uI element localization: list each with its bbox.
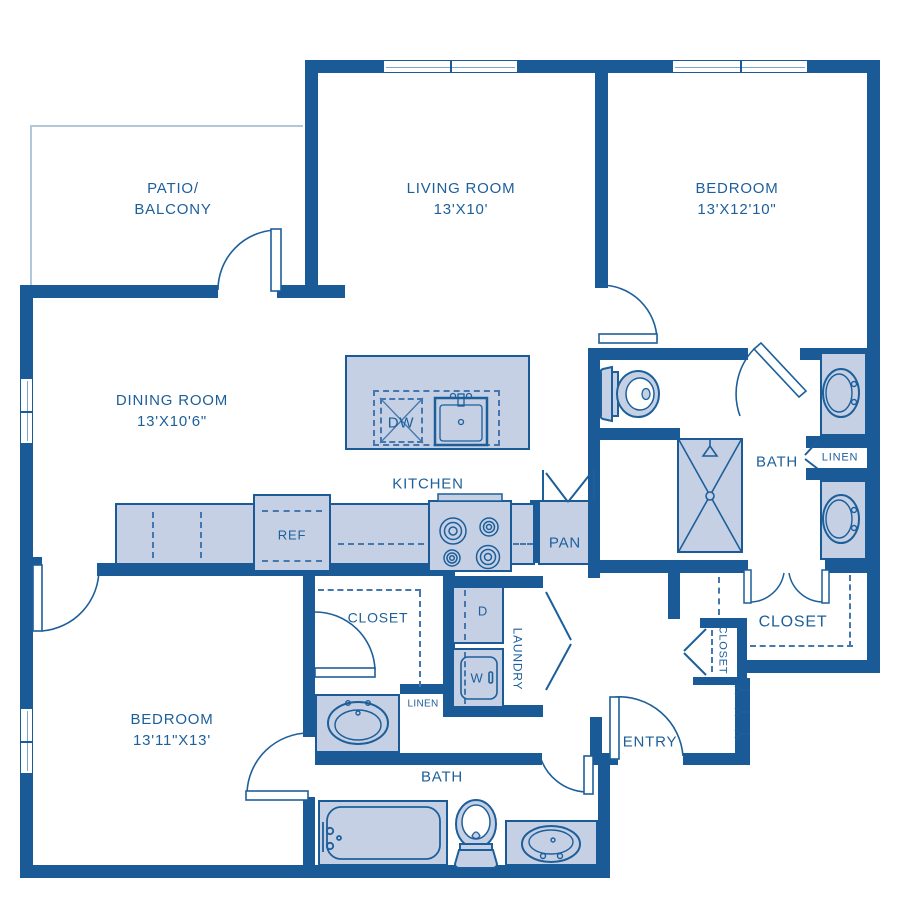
entry-coat-hooks [735,686,750,738]
bedroom1-label: BEDROOM 13'X12'10" [695,178,778,220]
small-closet-label: CLOSET [712,626,733,675]
linen2-label: LINEN [408,694,439,715]
dining-room-label: DINING ROOM 13'X10'6" [116,390,228,432]
patio-door [218,229,281,291]
bath1-label: BATH [756,452,798,473]
dryer-label: D [478,601,488,622]
linen1-label: LINEN [822,448,858,469]
patio-label-line1: PATIO/ [134,178,211,199]
walkin-closet-label: CLOSET [759,612,828,633]
pantry-label: PAN [549,533,581,554]
bath2-door [540,756,593,794]
living-room-dims: 13'X10' [407,199,516,220]
pantry-doors [543,470,594,502]
bath2-label: BATH [421,767,463,788]
sink-bath1-bottom [823,495,859,543]
toilet-bath2 [455,800,497,868]
washer-label: W [470,668,483,689]
bedroom1-dims: 13'X12'10" [695,199,778,220]
island-sink [435,394,487,446]
bedroom2-name: BEDROOM [130,709,213,730]
bedroom2-hall-door [246,733,309,800]
bedroom2-door [33,565,99,631]
dining-room-dims: 13'X10'6" [116,411,228,432]
sink-bedroom2-vanity [328,701,388,744]
bathtub-detail [323,807,440,859]
toilet-bath1 [601,367,659,421]
shower-detail [679,438,741,551]
small-closet-doors [684,629,706,675]
sink-bath2 [522,826,580,862]
patio-label: PATIO/ BALCONY [134,178,211,220]
fixtures-layer [0,0,900,900]
bedroom1-name: BEDROOM [695,178,778,199]
linen1-door [805,441,818,469]
living-room-label: LIVING ROOM 13'X10' [407,178,516,220]
dining-room-name: DINING ROOM [116,390,228,411]
bedroom2-dims: 13'11"X13' [130,730,213,751]
bedroom1-door [599,285,657,343]
bedroom2-closet-label: CLOSET [348,608,409,629]
bedroom2-label: BEDROOM 13'11"X13' [130,709,213,751]
dishwasher-label: DW [388,413,415,434]
walkin-closet-doors [744,570,829,603]
floor-plan: PATIO/ BALCONY LIVING ROOM 13'X10' BEDRO… [0,0,900,900]
entry-label: ENTRY [623,732,678,753]
kitchen-label: KITCHEN [392,474,463,495]
laundry-doors [546,592,571,690]
stove-burners [438,494,502,569]
living-room-name: LIVING ROOM [407,178,516,199]
refrigerator-label: REF [278,525,306,546]
laundry-label: LAUNDRY [507,628,528,691]
patio-label-line2: BALCONY [134,199,211,220]
bath1-door [736,343,806,416]
sink-bath1-top [823,369,859,417]
